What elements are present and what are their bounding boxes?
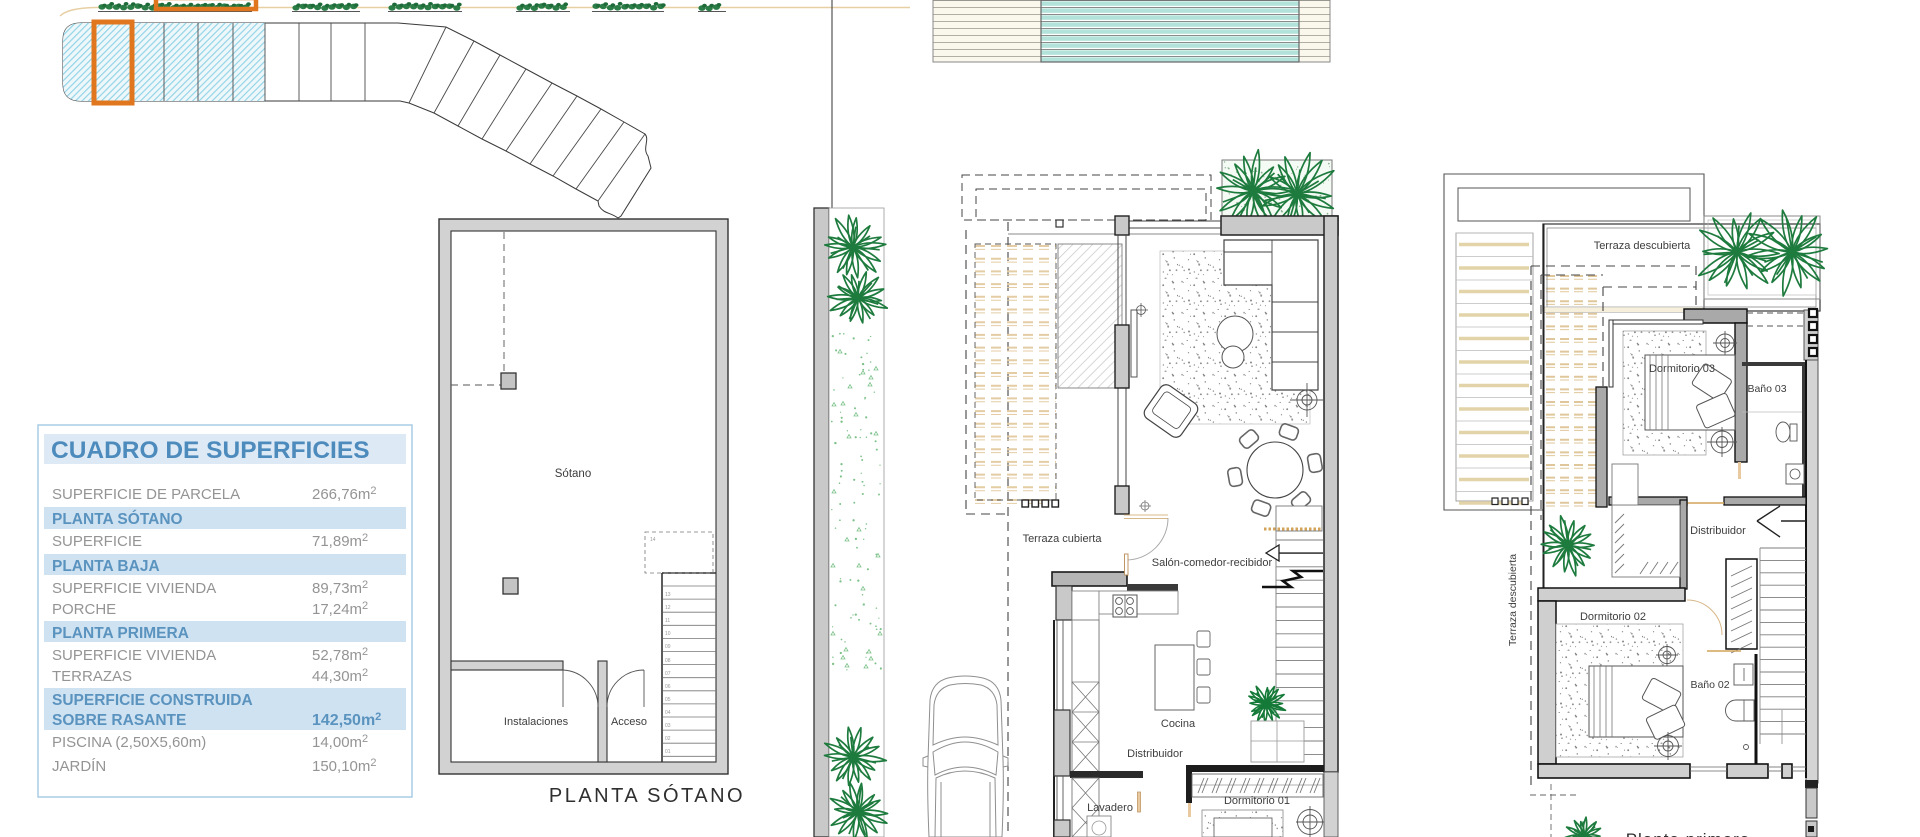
svg-text:PISCINA (2,50X5,60m): PISCINA (2,50X5,60m) <box>52 734 206 751</box>
svg-text:03: 03 <box>665 723 671 729</box>
svg-text:Salón-comedor-recibidor: Salón-comedor-recibidor <box>1152 557 1273 569</box>
svg-text:04: 04 <box>665 710 671 716</box>
svg-text:266,76m2: 266,76m2 <box>312 485 377 503</box>
svg-text:14,00m2: 14,00m2 <box>312 733 368 751</box>
svg-text:05: 05 <box>665 697 671 703</box>
svg-text:SUPERFICIE VIVIENDA: SUPERFICIE VIVIENDA <box>52 580 216 597</box>
svg-text:13: 13 <box>665 592 671 598</box>
svg-text:Sótano: Sótano <box>555 468 591 480</box>
svg-text:Acceso: Acceso <box>611 716 647 728</box>
svg-text:SUPERFICIE CONSTRUIDA: SUPERFICIE CONSTRUIDA <box>52 692 253 709</box>
svg-text:Distribuidor: Distribuidor <box>1127 748 1183 760</box>
svg-text:TERRAZAS: TERRAZAS <box>52 668 132 685</box>
svg-text:Planta primera: Planta primera <box>1626 830 1751 837</box>
svg-text:Dormitorio 03: Dormitorio 03 <box>1649 363 1715 375</box>
svg-text:JARDÍN: JARDÍN <box>52 758 106 775</box>
svg-text:Baño 02: Baño 02 <box>1690 679 1729 691</box>
svg-text:Cocina: Cocina <box>1161 718 1196 730</box>
svg-text:71,89m2: 71,89m2 <box>312 532 368 550</box>
svg-text:Terraza descubierta: Terraza descubierta <box>1594 240 1691 252</box>
svg-text:Dormitorio 01: Dormitorio 01 <box>1224 795 1290 807</box>
svg-text:12: 12 <box>665 605 671 611</box>
svg-text:SUPERFICIE DE PARCELA: SUPERFICIE DE PARCELA <box>52 486 240 503</box>
svg-text:06: 06 <box>665 684 671 690</box>
svg-text:Dormitorio 02: Dormitorio 02 <box>1580 611 1646 623</box>
svg-text:14: 14 <box>650 537 656 543</box>
svg-text:10: 10 <box>665 631 671 637</box>
svg-text:08: 08 <box>665 658 671 664</box>
svg-text:CUADRO DE SUPERFICIES: CUADRO DE SUPERFICIES <box>51 437 370 464</box>
svg-text:09: 09 <box>665 644 671 650</box>
svg-text:PLANTA BAJA: PLANTA BAJA <box>52 558 160 575</box>
svg-text:07: 07 <box>665 671 671 677</box>
svg-text:PLANTA SÓTANO: PLANTA SÓTANO <box>52 510 183 528</box>
svg-text:Baño 03: Baño 03 <box>1747 383 1786 395</box>
svg-text:PLANTA SÓTANO: PLANTA SÓTANO <box>549 784 745 807</box>
svg-text:SOBRE RASANTE: SOBRE RASANTE <box>52 712 186 729</box>
svg-text:SUPERFICIE: SUPERFICIE <box>52 533 142 550</box>
svg-text:17,24m2: 17,24m2 <box>312 600 368 618</box>
svg-text:Lavadero: Lavadero <box>1087 802 1133 814</box>
svg-text:52,78m2: 52,78m2 <box>312 646 368 664</box>
svg-text:142,50m2: 142,50m2 <box>312 711 381 729</box>
svg-text:PLANTA PRIMERA: PLANTA PRIMERA <box>52 625 189 642</box>
svg-text:150,10m2: 150,10m2 <box>312 757 377 775</box>
svg-text:Terraza cubierta: Terraza cubierta <box>1023 533 1103 545</box>
svg-text:02: 02 <box>665 736 671 742</box>
svg-text:SUPERFICIE VIVIENDA: SUPERFICIE VIVIENDA <box>52 647 216 664</box>
svg-text:01: 01 <box>665 749 671 755</box>
svg-text:Terraza descubierta: Terraza descubierta <box>1507 554 1519 646</box>
svg-text:Distribuidor: Distribuidor <box>1690 525 1746 537</box>
svg-text:PORCHE: PORCHE <box>52 601 116 618</box>
svg-text:89,73m2: 89,73m2 <box>312 579 368 597</box>
svg-text:11: 11 <box>665 618 670 624</box>
svg-text:Instalaciones: Instalaciones <box>504 716 569 728</box>
svg-text:44,30m2: 44,30m2 <box>312 667 368 685</box>
